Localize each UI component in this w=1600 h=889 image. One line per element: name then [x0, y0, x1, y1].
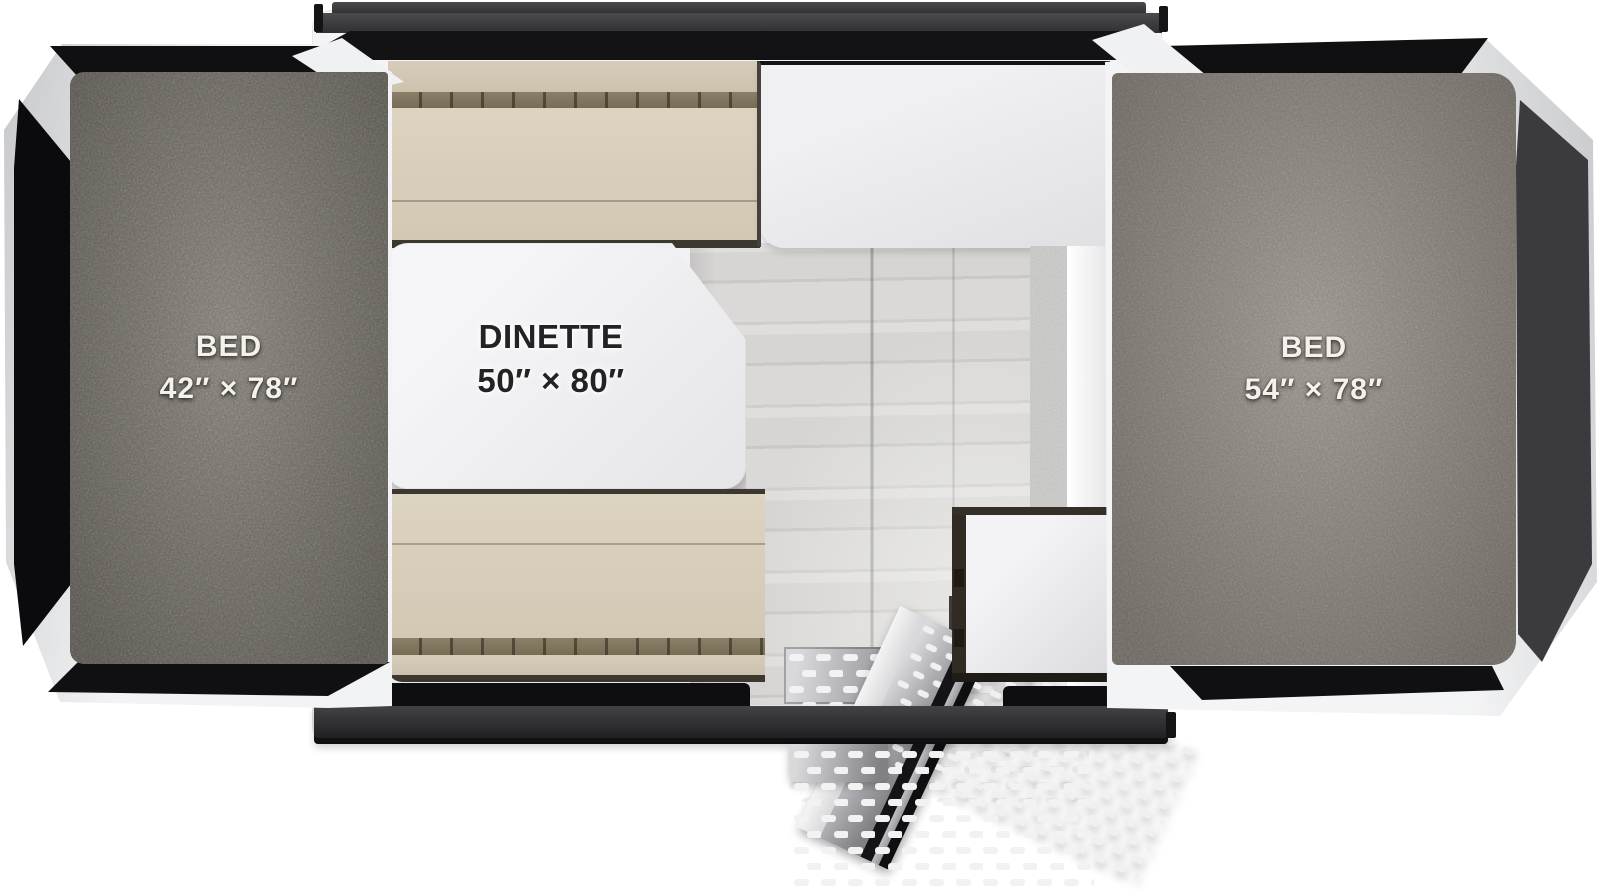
right-bed-label: BED 54″ × 78″ [1112, 73, 1516, 665]
left-bed-mattress: BED 42″ × 78″ [70, 72, 388, 664]
entry-step-lower-plate [789, 744, 888, 782]
cushion-seam [388, 200, 760, 202]
roof-rail-latch-right [1159, 6, 1168, 32]
dinette-label: DINETTE 50″ × 80″ [386, 315, 716, 403]
cabinet-door [966, 515, 1110, 673]
countertop-edge-strip [1030, 246, 1067, 514]
camper-floorplan: DINETTE 50″ × 80″ BED 42″ × 78″ [0, 0, 1600, 889]
cabinet-frame-top [952, 507, 1110, 515]
bench-backrest [388, 655, 765, 675]
bench-seat-cushion [388, 108, 760, 240]
storage-cabinet [952, 507, 1110, 682]
counter-edge [760, 61, 1110, 65]
dinette-size: 50″ × 80″ [386, 359, 716, 403]
bench-seat-cushion [388, 494, 765, 638]
rear-body-rail [314, 706, 1168, 744]
left-tent-panel-end [14, 94, 72, 646]
left-bed-label: BED 42″ × 78″ [70, 72, 388, 664]
cabinet-hinge [954, 569, 964, 587]
left-bed-name: BED [196, 330, 262, 364]
bench-tuft-band [388, 638, 765, 655]
right-bed-mattress: BED 54″ × 78″ [1112, 73, 1516, 665]
cabinet-frame-bottom [952, 673, 1110, 682]
left-bed-size: 42″ × 78″ [160, 372, 299, 406]
galley-counter [760, 61, 1110, 248]
roof-rail-latch-left [314, 4, 323, 32]
bench-edge [388, 675, 765, 682]
rear-rail-latch [1166, 712, 1176, 738]
bench-backrest [388, 61, 760, 92]
dinette-table: DINETTE 50″ × 80″ [386, 243, 746, 489]
dinette-name: DINETTE [386, 315, 716, 359]
bench-tuft-band [388, 92, 760, 108]
right-bed-size: 54″ × 78″ [1245, 373, 1384, 407]
dinette-bench-bottom [388, 489, 765, 682]
roof-rail-mid [316, 13, 1162, 33]
right-bed-name: BED [1281, 331, 1347, 365]
cabinet-hinge [954, 629, 964, 647]
cabinet-frame [952, 507, 966, 682]
dinette-bench-top [388, 61, 760, 248]
roof-rail-main [298, 31, 1164, 60]
bench-counter-seam [757, 63, 761, 247]
cushion-seam [388, 543, 765, 545]
